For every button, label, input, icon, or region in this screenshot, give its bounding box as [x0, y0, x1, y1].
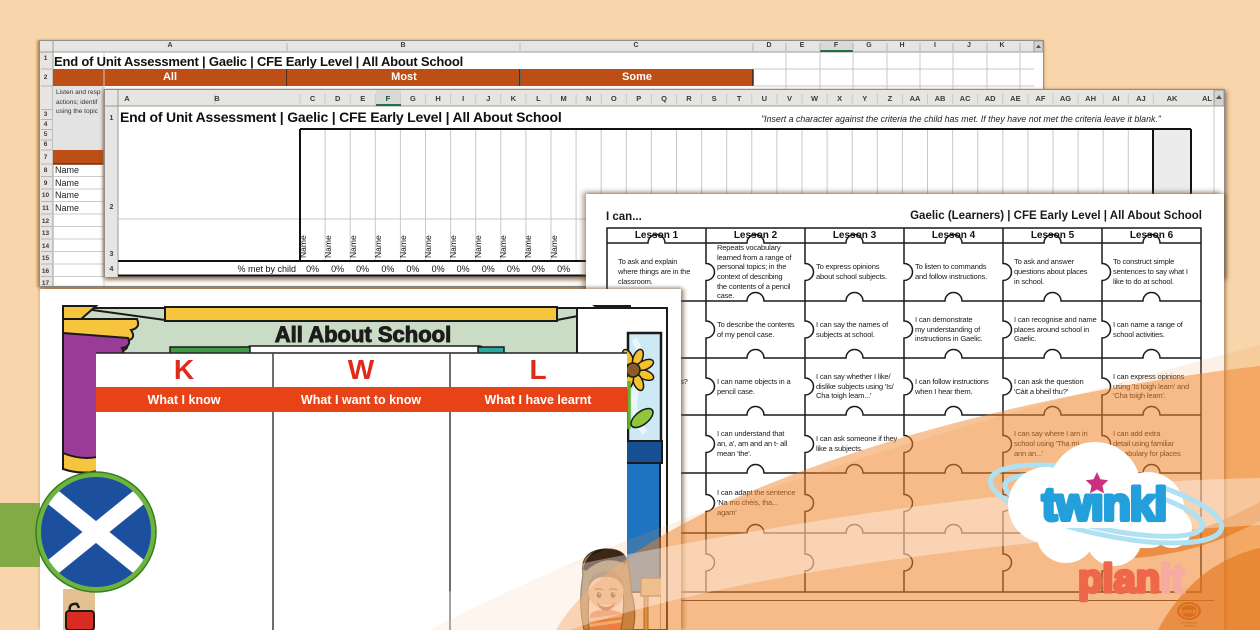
svg-text:planit: planit	[1078, 557, 1185, 601]
svg-text:twınkl: twınkl	[1042, 478, 1166, 530]
